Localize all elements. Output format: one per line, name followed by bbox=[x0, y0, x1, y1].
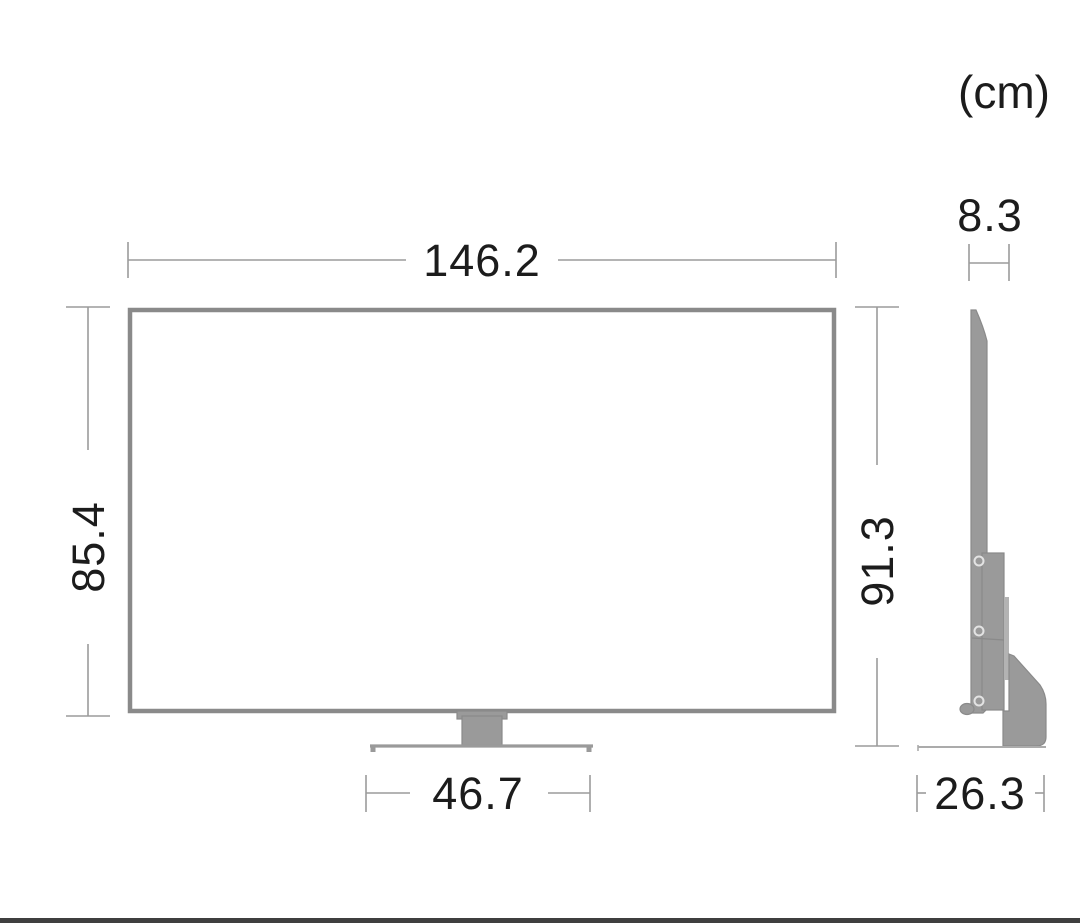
total-height-value: 91.3 bbox=[852, 515, 903, 607]
tv-front-panel bbox=[130, 310, 834, 711]
tv-side-panel-foot bbox=[960, 704, 974, 715]
panel-height-value: 85.4 bbox=[63, 501, 114, 593]
screw-hole-bottom bbox=[975, 697, 984, 706]
tv-side-back-box bbox=[982, 553, 1004, 710]
dimension-depth: 8.3 bbox=[957, 190, 1023, 281]
dimension-total-height: 91.3 bbox=[852, 307, 903, 746]
footer-bar bbox=[0, 918, 1080, 923]
screw-hole-top bbox=[975, 557, 984, 566]
stand-width-value: 46.7 bbox=[432, 768, 524, 819]
width-value: 146.2 bbox=[423, 235, 541, 286]
screw-hole-middle bbox=[975, 627, 984, 636]
tv-stand-neck bbox=[462, 716, 502, 745]
tv-side-stand-foot bbox=[1003, 654, 1046, 746]
dimension-width: 146.2 bbox=[128, 235, 836, 286]
dimension-panel-height: 85.4 bbox=[63, 307, 114, 716]
dimension-stand-width: 46.7 bbox=[366, 768, 590, 819]
depth-value: 8.3 bbox=[957, 190, 1023, 241]
diagram-svg: (cm) 146.2 85.4 91.3 46.7 bbox=[0, 0, 1080, 923]
tv-side-stand-neck bbox=[1004, 597, 1009, 680]
dimension-diagram: (cm) 146.2 85.4 91.3 46.7 bbox=[0, 0, 1080, 923]
unit-label: (cm) bbox=[958, 66, 1050, 118]
base-depth-value: 26.3 bbox=[934, 768, 1026, 819]
dimension-base-depth: 26.3 bbox=[917, 768, 1044, 819]
